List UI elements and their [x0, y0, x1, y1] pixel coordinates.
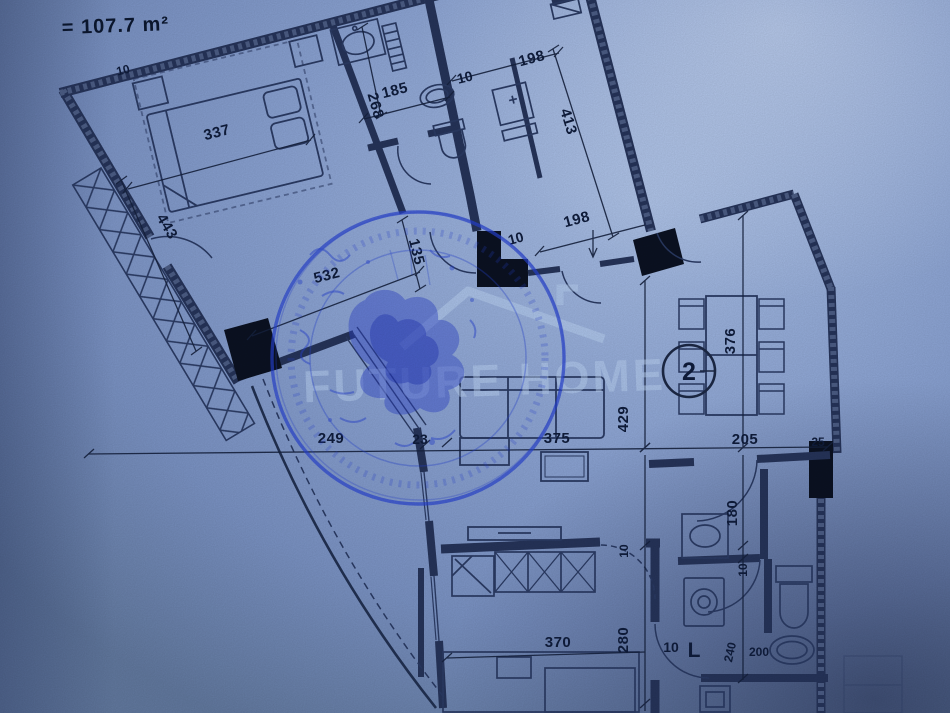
photo-grain-overlay: [0, 0, 950, 713]
floor-plan-svg: = 107.7 m² 337 443 532 185 268 10 10 198…: [0, 0, 950, 713]
floor-plan-photo: = 107.7 m² 337 443 532 185 268 10 10 198…: [0, 0, 950, 713]
